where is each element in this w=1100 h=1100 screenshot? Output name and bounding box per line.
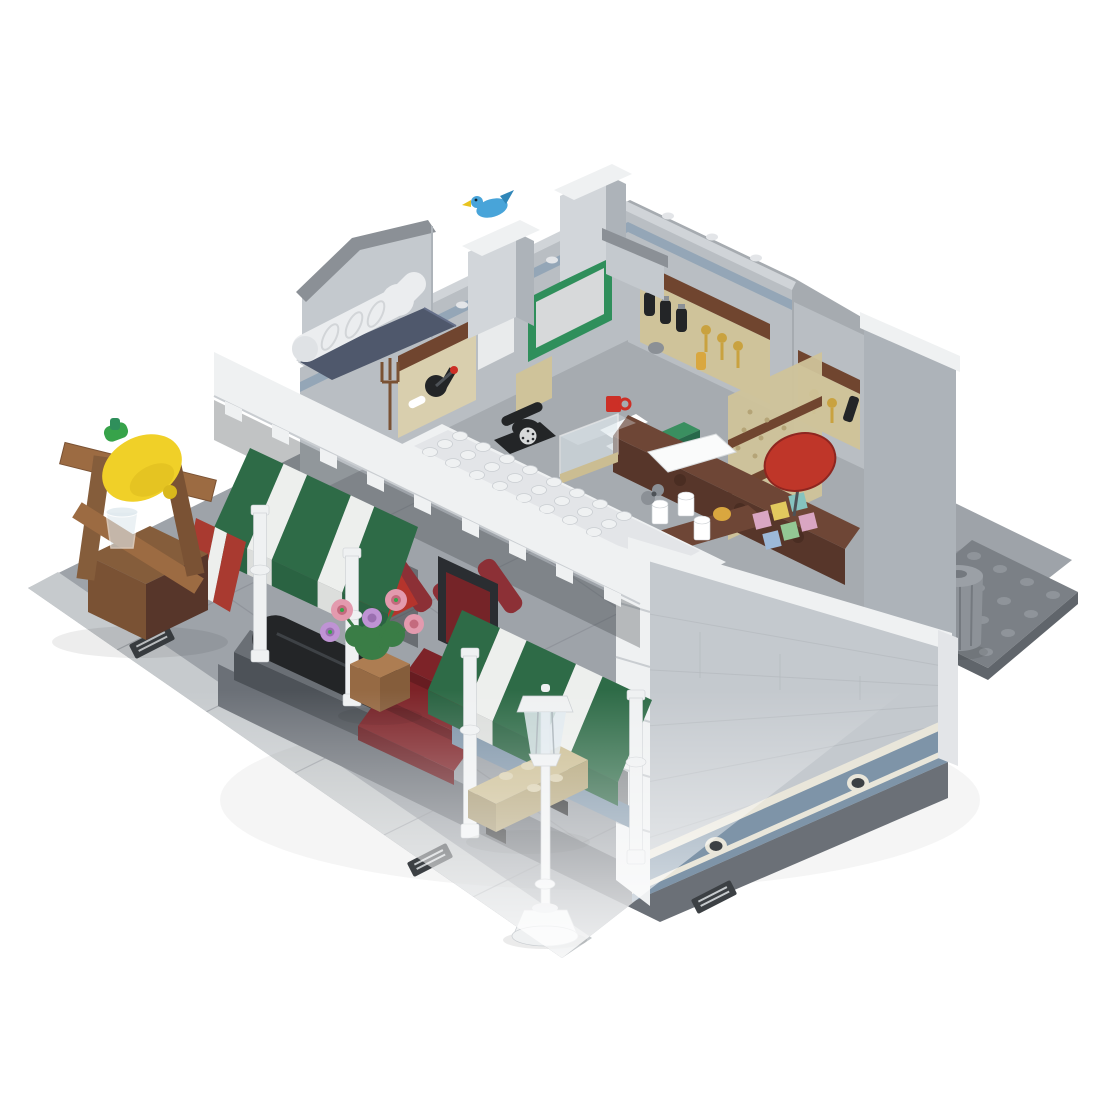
chimney-with-bird xyxy=(462,190,540,339)
amber-bottle xyxy=(696,352,706,370)
technic-hole xyxy=(847,774,869,792)
render-canvas xyxy=(0,0,1100,1100)
lego-shop-render xyxy=(0,0,1100,1100)
blue-bird xyxy=(462,190,514,221)
